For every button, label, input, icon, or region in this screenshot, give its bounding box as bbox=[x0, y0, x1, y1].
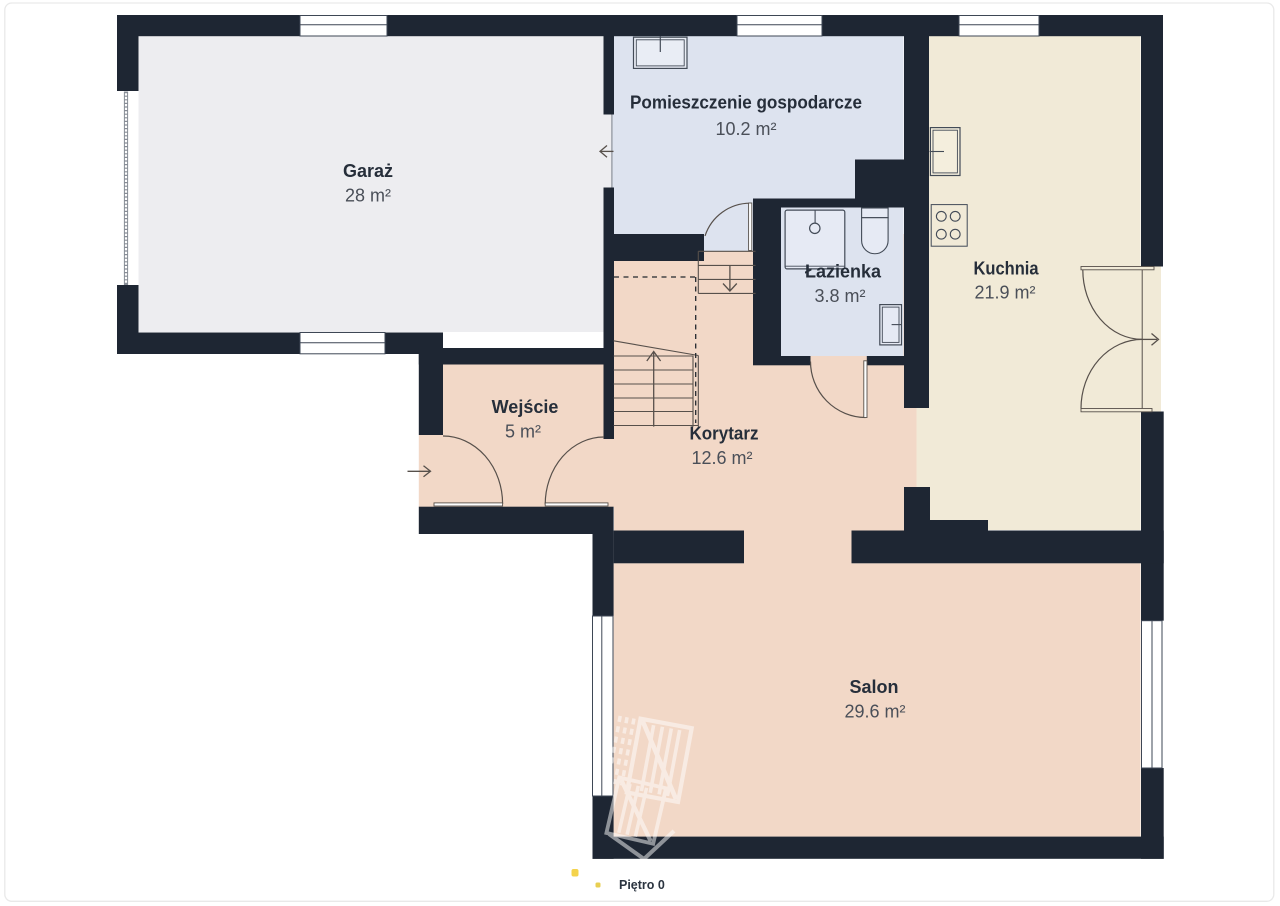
svg-text:Piętro 0: Piętro 0 bbox=[619, 878, 665, 892]
svg-text:Wejście: Wejście bbox=[492, 397, 559, 417]
svg-text:Salon: Salon bbox=[849, 677, 898, 697]
svg-text:29.6 m²: 29.6 m² bbox=[844, 702, 905, 722]
svg-text:10.2 m²: 10.2 m² bbox=[715, 119, 776, 139]
svg-text:Korytarz: Korytarz bbox=[690, 424, 759, 444]
svg-text:12.6 m²: 12.6 m² bbox=[691, 448, 752, 468]
svg-text:28 m²: 28 m² bbox=[345, 186, 391, 206]
svg-text:Kuchnia: Kuchnia bbox=[974, 259, 1040, 279]
svg-text:Łazienka: Łazienka bbox=[805, 262, 882, 282]
svg-text:Garaż: Garaż bbox=[343, 161, 393, 181]
svg-text:Pomieszczenie gospodarcze: Pomieszczenie gospodarcze bbox=[630, 93, 862, 113]
svg-text:5 m²: 5 m² bbox=[505, 422, 541, 442]
svg-text:3.8 m²: 3.8 m² bbox=[814, 286, 865, 306]
svg-text:21.9 m²: 21.9 m² bbox=[974, 283, 1035, 303]
